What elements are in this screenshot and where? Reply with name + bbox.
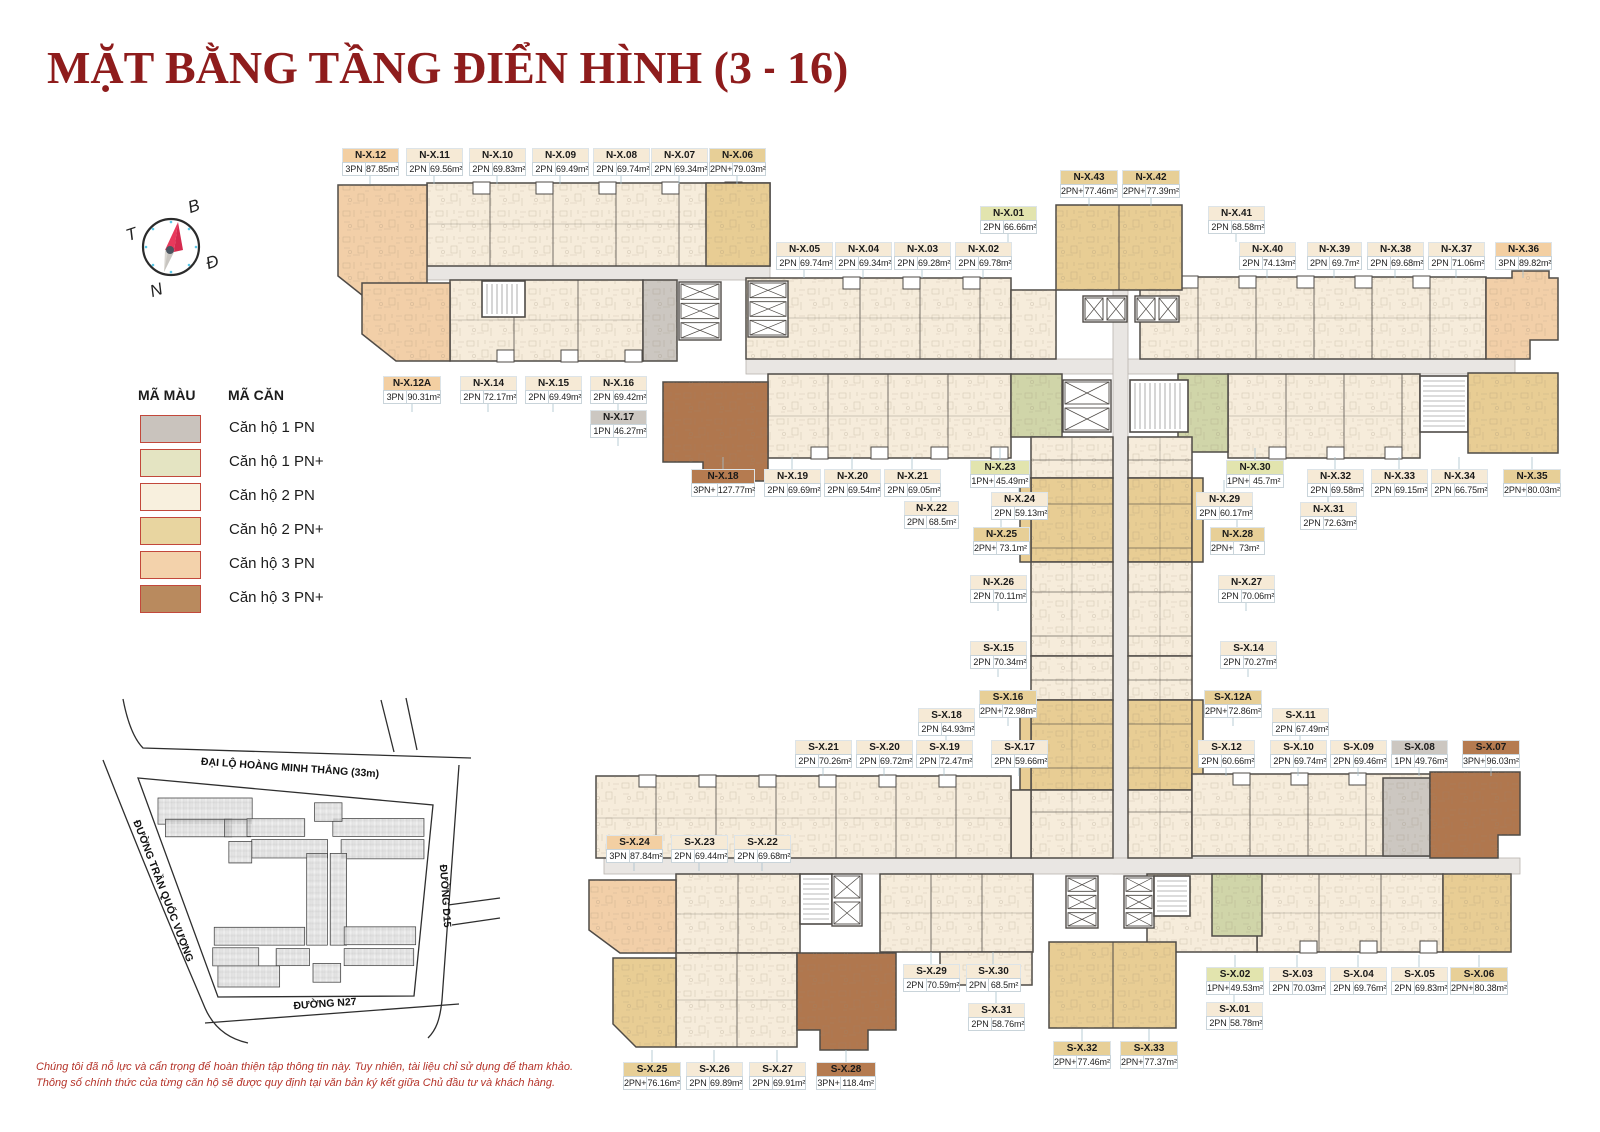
- svg-text:T: T: [123, 223, 140, 245]
- svg-text:Đ: Đ: [203, 251, 221, 273]
- svg-text:N: N: [147, 279, 165, 301]
- svg-text:B: B: [185, 195, 202, 217]
